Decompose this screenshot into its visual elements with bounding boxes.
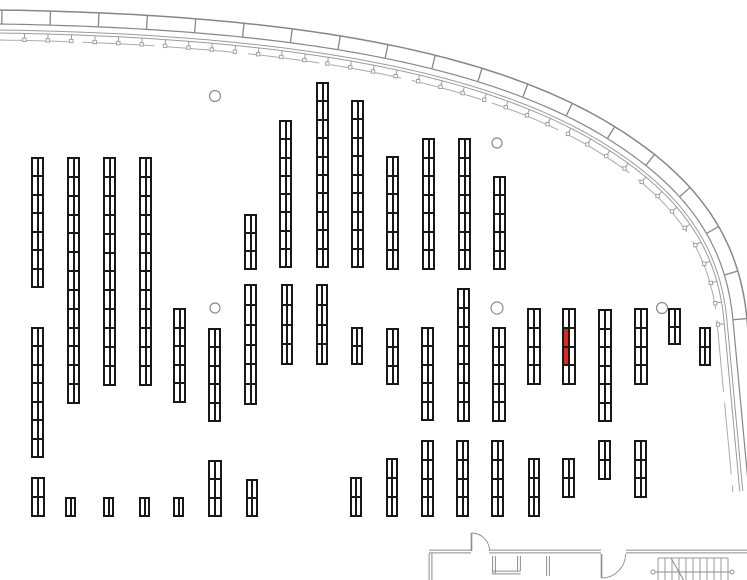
shelf-cell [146, 271, 152, 290]
shelf-cell [357, 346, 362, 364]
shelf-rack[interactable] [456, 440, 469, 517]
shelf-cell [251, 345, 257, 365]
shelf-cell [251, 384, 257, 404]
shelf-cell [356, 478, 361, 497]
shelf-cell [323, 193, 329, 211]
shelf-cell [393, 194, 399, 213]
shelf-cell [500, 177, 506, 195]
shelf-cell [215, 329, 221, 347]
shelf-cell [429, 213, 435, 232]
shelf-cell [500, 251, 506, 269]
shelf-rack-layer [0, 0, 747, 580]
shelf-cell [429, 250, 435, 269]
shelf-cell [675, 327, 681, 345]
shelf-cell [146, 234, 152, 253]
store-floor-plan-canvas[interactable] [0, 0, 747, 580]
shelf-cell [498, 479, 504, 498]
shelf-cell [605, 329, 611, 348]
shelf-cell [323, 157, 329, 175]
shelf-cell [429, 232, 435, 251]
shelf-cell [393, 329, 399, 347]
shelf-cell [38, 158, 44, 176]
shelf-cell [463, 460, 469, 479]
shelf-cell [38, 497, 44, 516]
shelf-cell [428, 346, 434, 364]
shelf-cell [358, 249, 364, 267]
shelf-cell [463, 441, 469, 460]
shelf-cell [287, 285, 292, 305]
highlighted-shelf-rack[interactable] [562, 308, 576, 385]
shelf-cell [641, 365, 647, 384]
shelf-cell [38, 346, 44, 364]
shelf-cell [499, 402, 505, 421]
shelf-cell [110, 290, 116, 309]
shelf-cell [252, 498, 257, 516]
shelf-cell [464, 289, 470, 308]
shelf-cell [74, 309, 80, 328]
shelf-cell [605, 347, 611, 366]
shelf-cell [428, 441, 434, 460]
shelf-rack[interactable] [173, 497, 184, 517]
shelf-cell [569, 309, 575, 328]
shelf-cell [110, 328, 116, 347]
shelf-cell [569, 347, 575, 366]
shelf-rack[interactable] [244, 214, 257, 270]
shelf-cell [641, 328, 647, 347]
shelf-cell [428, 383, 434, 401]
shelf-rack[interactable] [351, 327, 363, 365]
shelf-cell [287, 305, 292, 325]
shelf-rack[interactable] [598, 440, 611, 480]
shelf-rack[interactable] [281, 284, 293, 365]
shelf-cell [251, 251, 257, 269]
shelf-cell [534, 347, 540, 366]
shelf-cell [287, 325, 292, 345]
shelf-cell [287, 344, 292, 364]
shelf-rack[interactable] [103, 157, 116, 386]
shelf-cell [110, 347, 116, 366]
shelf-rack[interactable] [421, 327, 434, 421]
shelf-rack[interactable] [491, 440, 504, 517]
shelf-cell [38, 195, 44, 213]
shelf-cell [38, 328, 44, 346]
shelf-cell [74, 271, 80, 290]
shelf-cell [323, 101, 329, 119]
shelf-cell [358, 138, 364, 156]
shelf-cell [146, 196, 152, 215]
shelf-cell [180, 309, 186, 328]
shelf-cell [675, 309, 681, 327]
shelf-cell [464, 346, 470, 365]
shelf-cell [323, 138, 329, 156]
shelf-rack[interactable] [31, 327, 44, 458]
shelf-cell [499, 328, 505, 347]
shelf-cell [180, 383, 186, 402]
shelf-cell [180, 365, 186, 384]
shelf-cell [71, 498, 76, 516]
shelf-cell [641, 441, 647, 460]
shelf-rack[interactable] [421, 440, 434, 517]
shelf-cell [110, 271, 116, 290]
shelf-cell [110, 253, 116, 272]
shelf-cell [323, 249, 329, 267]
shelf-cell [605, 403, 611, 422]
shelf-cell [215, 498, 221, 516]
shelf-cell [215, 461, 221, 479]
shelf-rack[interactable] [668, 308, 681, 345]
shelf-rack[interactable] [139, 157, 152, 386]
shelf-cell [534, 328, 540, 347]
shelf-cell [428, 328, 434, 346]
shelf-cell [251, 233, 257, 251]
shelf-cell [534, 309, 540, 328]
shelf-cell [428, 497, 434, 516]
shelf-cell [465, 158, 471, 177]
shelf-rack[interactable] [527, 308, 541, 385]
shelf-rack[interactable] [493, 176, 506, 270]
shelf-cell [393, 213, 399, 232]
shelf-cell [392, 497, 397, 516]
shelf-cell [393, 157, 399, 176]
shelf-cell [74, 290, 80, 309]
shelf-cell [464, 364, 470, 383]
shelf-cell [464, 383, 470, 402]
shelf-cell [500, 195, 506, 213]
shelf-cell [358, 230, 364, 248]
shelf-cell [534, 365, 540, 384]
shelf-cell [215, 347, 221, 365]
shelf-rack[interactable] [65, 497, 76, 517]
shelf-cell [38, 402, 44, 420]
shelf-cell [146, 347, 152, 366]
shelf-cell [38, 420, 44, 438]
shelf-cell [428, 460, 434, 479]
shelf-cell [499, 384, 505, 403]
shelf-cell [74, 196, 80, 215]
shelf-cell [464, 308, 470, 327]
shelf-rack[interactable] [351, 100, 364, 268]
shelf-cell [110, 366, 116, 385]
shelf-rack[interactable] [279, 120, 292, 268]
shelf-cell [74, 346, 80, 365]
shelf-cell [146, 253, 152, 272]
shelf-rack[interactable] [244, 284, 257, 405]
shelf-cell [286, 249, 292, 267]
shelf-cell [38, 269, 44, 287]
shelf-rack[interactable] [31, 157, 44, 288]
shelf-cell [569, 459, 575, 478]
shelf-cell [569, 328, 575, 347]
shelf-cell [500, 232, 506, 250]
shelf-cell [146, 290, 152, 309]
shelf-cell [393, 176, 399, 195]
shelf-cell [286, 158, 292, 176]
shelf-cell [605, 441, 611, 460]
shelf-cell [286, 194, 292, 212]
shelf-cell [393, 347, 399, 365]
shelf-cell [534, 497, 539, 516]
shelf-cell [74, 158, 80, 177]
shelf-cell [358, 193, 364, 211]
shelf-cell [534, 478, 539, 497]
shelf-cell [38, 439, 44, 457]
shelf-cell [464, 327, 470, 346]
shelf-cell [500, 214, 506, 232]
shelf-cell [323, 175, 329, 193]
shelf-cell [323, 83, 329, 101]
shelf-cell [110, 158, 116, 177]
shelf-cell [358, 119, 364, 137]
shelf-rack[interactable] [31, 477, 45, 517]
shelf-cell [215, 366, 221, 384]
shelf-cell [705, 328, 710, 347]
shelf-cell [251, 305, 257, 325]
shelf-rack[interactable] [139, 497, 150, 517]
shelf-rack[interactable] [458, 138, 471, 270]
shelf-cell [605, 384, 611, 403]
shelf-cell [38, 365, 44, 383]
shelf-rack[interactable] [316, 284, 328, 365]
shelf-cell [429, 176, 435, 195]
shelf-cell [215, 384, 221, 402]
shelf-cell [322, 305, 327, 325]
shelf-cell [465, 176, 471, 195]
shelf-cell [358, 101, 364, 119]
shelf-cell [358, 212, 364, 230]
shelf-cell [286, 212, 292, 230]
shelf-cell [605, 310, 611, 329]
shelf-cell [641, 347, 647, 366]
shelf-cell [499, 347, 505, 366]
shelf-cell [498, 460, 504, 479]
shelf-cell [251, 215, 257, 233]
shelf-cell [356, 497, 361, 516]
shelf-cell [215, 479, 221, 497]
shelf-rack[interactable] [492, 327, 506, 422]
shelf-cell [498, 441, 504, 460]
shelf-cell [358, 175, 364, 193]
shelf-cell [251, 285, 257, 305]
shelf-cell [393, 232, 399, 251]
shelf-cell [322, 344, 327, 364]
shelf-cell [463, 497, 469, 516]
shelf-cell [38, 232, 44, 250]
shelf-rack[interactable] [386, 156, 399, 270]
shelf-cell [322, 285, 327, 305]
shelf-cell [38, 383, 44, 401]
shelf-cell [146, 309, 152, 328]
shelf-cell [323, 230, 329, 248]
shelf-rack[interactable] [208, 460, 222, 517]
shelf-rack[interactable] [386, 458, 398, 517]
shelf-cell [534, 459, 539, 478]
shelf-cell [429, 139, 435, 158]
shelf-cell [605, 366, 611, 385]
shelf-cell [393, 250, 399, 269]
shelf-cell [74, 177, 80, 196]
shelf-cell [465, 232, 471, 251]
shelf-cell [428, 402, 434, 420]
shelf-cell [38, 213, 44, 231]
shelf-rack[interactable] [562, 458, 575, 498]
shelf-cell [146, 177, 152, 196]
shelf-cell [74, 328, 80, 347]
shelf-cell [251, 364, 257, 384]
shelf-rack[interactable] [699, 327, 711, 366]
shelf-cell [463, 479, 469, 498]
shelf-cell [286, 139, 292, 157]
shelf-cell [323, 120, 329, 138]
shelf-rack[interactable] [634, 440, 647, 498]
shelf-cell [393, 366, 399, 384]
shelf-cell [465, 195, 471, 214]
shelf-cell [38, 478, 44, 497]
shelf-cell [179, 498, 184, 516]
shelf-rack[interactable] [598, 309, 612, 422]
shelf-cell [465, 139, 471, 158]
shelf-rack[interactable] [246, 479, 258, 517]
shelf-cell [110, 196, 116, 215]
shelf-cell [74, 233, 80, 252]
shelf-cell [252, 480, 257, 498]
shelf-cell [251, 325, 257, 345]
shelf-cell [146, 215, 152, 234]
shelf-cell [145, 498, 150, 516]
shelf-cell [322, 325, 327, 345]
shelf-cell [286, 231, 292, 249]
shelf-cell [110, 309, 116, 328]
shelf-cell [641, 309, 647, 328]
shelf-rack[interactable] [173, 308, 186, 403]
shelf-cell [215, 403, 221, 421]
shelf-cell [146, 366, 152, 385]
shelf-cell [38, 176, 44, 194]
shelf-rack[interactable] [528, 458, 540, 517]
shelf-rack[interactable] [350, 477, 362, 517]
shelf-cell [569, 478, 575, 497]
shelf-cell [498, 497, 504, 516]
shelf-cell [357, 328, 362, 346]
shelf-cell [109, 498, 114, 516]
shelf-cell [641, 478, 647, 497]
shelf-cell [499, 365, 505, 384]
shelf-cell [146, 328, 152, 347]
shelf-cell [74, 365, 80, 384]
shelf-cell [428, 365, 434, 383]
shelf-cell [323, 212, 329, 230]
shelf-cell [428, 479, 434, 498]
shelf-cell [465, 250, 471, 269]
shelf-cell [641, 460, 647, 479]
shelf-cell [180, 328, 186, 347]
shelf-cell [358, 156, 364, 174]
shelf-cell [38, 250, 44, 268]
shelf-cell [110, 234, 116, 253]
shelf-cell [392, 478, 397, 497]
shelf-cell [180, 346, 186, 365]
shelf-cell [429, 195, 435, 214]
shelf-rack[interactable] [457, 288, 470, 422]
shelf-rack[interactable] [634, 308, 648, 385]
shelf-rack[interactable] [103, 497, 114, 517]
shelf-cell [110, 177, 116, 196]
shelf-cell [569, 365, 575, 384]
shelf-cell [465, 213, 471, 232]
shelf-cell [110, 215, 116, 234]
shelf-cell [464, 402, 470, 421]
shelf-cell [74, 215, 80, 234]
shelf-cell [146, 158, 152, 177]
shelf-cell [74, 252, 80, 271]
shelf-cell [429, 158, 435, 177]
shelf-rack[interactable] [422, 138, 435, 270]
shelf-cell [286, 176, 292, 194]
shelf-cell [286, 121, 292, 139]
shelf-rack[interactable] [67, 157, 80, 404]
shelf-cell [74, 384, 80, 403]
shelf-rack[interactable] [316, 82, 329, 268]
shelf-cell [605, 460, 611, 479]
shelf-rack[interactable] [386, 328, 399, 385]
shelf-cell [705, 347, 710, 366]
shelf-cell [392, 459, 397, 478]
shelf-rack[interactable] [208, 328, 221, 422]
